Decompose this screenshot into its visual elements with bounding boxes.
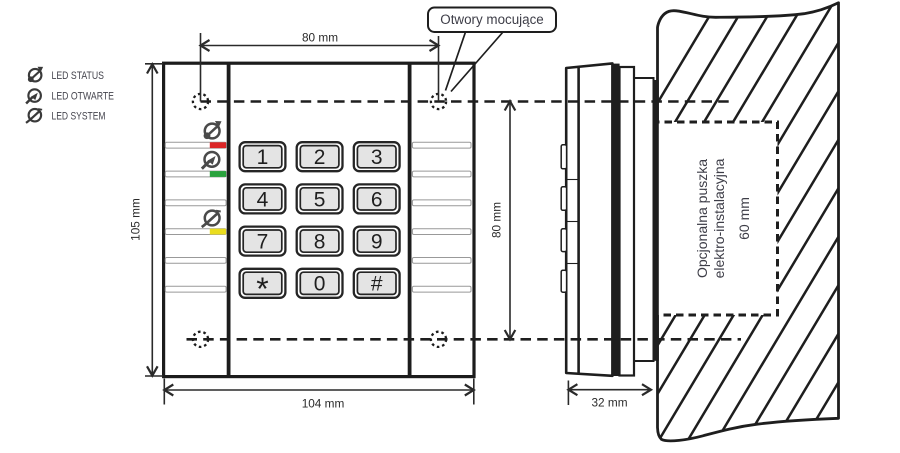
svg-text:6: 6	[371, 188, 383, 211]
svg-text:Opcjonalna puszka: Opcjonalna puszka	[694, 159, 710, 278]
svg-text:elektro-instalacyjna: elektro-instalacyjna	[711, 158, 727, 278]
svg-text:8: 8	[314, 231, 326, 254]
svg-text:105 mm: 105 mm	[129, 198, 143, 241]
svg-text:5: 5	[314, 188, 326, 211]
svg-text:32 mm: 32 mm	[591, 396, 627, 410]
svg-text:1: 1	[257, 146, 269, 169]
svg-text:#: #	[371, 273, 383, 296]
svg-text:3: 3	[371, 146, 383, 169]
svg-text:2: 2	[314, 146, 326, 169]
svg-text:80 mm: 80 mm	[490, 202, 504, 238]
svg-text:9: 9	[371, 231, 383, 254]
svg-text:0: 0	[314, 273, 326, 296]
svg-text:LED STATUS: LED STATUS	[52, 70, 105, 82]
svg-text:LED SYSTEM: LED SYSTEM	[52, 110, 106, 122]
svg-text:104 mm: 104 mm	[302, 397, 345, 411]
svg-text:80 mm: 80 mm	[302, 31, 338, 45]
svg-text:Otwory mocujące: Otwory mocujące	[440, 12, 543, 27]
svg-text:60 mm: 60 mm	[736, 197, 752, 240]
svg-text:4: 4	[257, 188, 269, 211]
svg-text:7: 7	[257, 231, 269, 254]
svg-text:LED OTWARTE: LED OTWARTE	[52, 91, 115, 103]
svg-text:*: *	[256, 271, 268, 307]
